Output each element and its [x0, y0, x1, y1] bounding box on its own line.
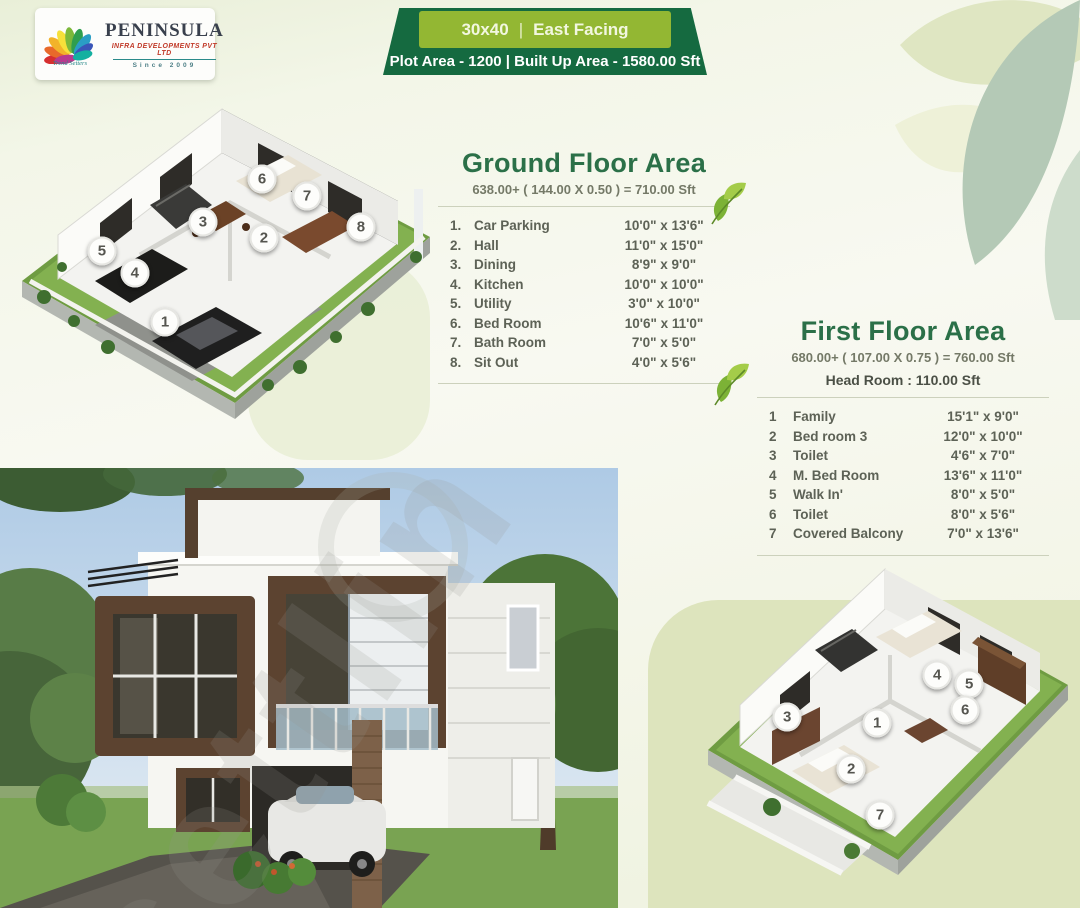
room-name: Toilet: [793, 448, 929, 463]
room-dimensions: 4'0" x 5'6": [610, 355, 718, 370]
room-name: Toilet: [793, 507, 929, 522]
ground-floor-title: Ground Floor Area: [438, 148, 730, 179]
room-dimensions: 8'0" x 5'6": [929, 507, 1037, 522]
first-floor-section: First Floor Area 680.00+ ( 107.00 X 0.75…: [757, 316, 1049, 556]
company-since: Since 2009: [105, 62, 224, 69]
plan-marker: 4: [923, 661, 952, 690]
room-number: 2: [769, 429, 793, 444]
first-floor-3d-plan: 1234567: [680, 555, 1080, 908]
room-number: 2.: [450, 238, 474, 253]
leaf-decoration-top-right: [840, 0, 1080, 320]
room-dimensions: 11'0" x 15'0": [610, 238, 718, 253]
room-dimensions: 7'0" x 5'0": [610, 335, 718, 350]
peacock-fan-icon: [43, 14, 97, 64]
room-row: 4. Kitchen 10'0" x 10'0": [450, 277, 718, 297]
banner-size-facing: 30x40 | East Facing: [419, 11, 671, 48]
first-floor-markers: 1234567: [680, 555, 1080, 908]
room-name: Sit Out: [474, 355, 610, 370]
ground-floor-section: Ground Floor Area 638.00+ ( 144.00 X 0.5…: [438, 148, 730, 384]
first-floor-bottom-divider: [757, 555, 1049, 556]
room-name: Bath Room: [474, 335, 610, 350]
logo-tagline: Trend Setters: [53, 60, 87, 67]
plan-marker: 3: [188, 207, 217, 236]
room-number: 8.: [450, 355, 474, 370]
room-number: 3.: [450, 257, 474, 272]
ground-floor-divider: [438, 206, 730, 207]
room-number: 5.: [450, 296, 474, 311]
plan-marker: 6: [248, 164, 277, 193]
room-dimensions: 13'6" x 11'0": [929, 468, 1037, 483]
room-dimensions: 8'9" x 9'0": [610, 257, 718, 272]
room-number: 7: [769, 526, 793, 541]
plot-banner: 30x40 | East Facing Plot Area - 1200 | B…: [383, 8, 707, 75]
room-name: Bed room 3: [793, 429, 929, 444]
room-row: 3 Toilet 4'6" x 7'0": [769, 448, 1037, 468]
room-row: 3. Dining 8'9" x 9'0": [450, 257, 718, 277]
house-elevation-render: [0, 468, 618, 908]
room-row: 5. Utility 3'0" x 10'0": [450, 296, 718, 316]
room-dimensions: 10'6" x 11'0": [610, 316, 718, 331]
plan-marker: 1: [151, 308, 180, 337]
room-row: 6 Toilet 8'0" x 5'6": [769, 507, 1037, 527]
room-row: 1 Family 15'1" x 9'0": [769, 409, 1037, 429]
room-dimensions: 15'1" x 9'0": [929, 409, 1037, 424]
ground-floor-bottom-divider: [438, 383, 730, 384]
room-row: 7 Covered Balcony 7'0" x 13'6": [769, 526, 1037, 546]
first-floor-title: First Floor Area: [757, 316, 1049, 347]
room-dimensions: 10'0" x 10'0": [610, 277, 718, 292]
ground-floor-3d-plan: 12345678: [0, 85, 445, 455]
room-number: 6: [769, 507, 793, 522]
company-logo-card: Trend Setters PENINSULA INFRA DEVELOPMEN…: [35, 8, 215, 80]
room-name: Dining: [474, 257, 610, 272]
company-subtitle: INFRA DEVELOPMENTS PVT LTD: [105, 43, 224, 57]
room-name: Walk In': [793, 487, 929, 502]
first-floor-formula: 680.00+ ( 107.00 X 0.75 ) = 760.00 Sft: [757, 350, 1049, 365]
first-floor-headroom: Head Room : 110.00 Sft: [757, 372, 1049, 388]
plan-marker: 3: [773, 703, 802, 732]
plan-marker: 5: [955, 669, 984, 698]
plan-marker: 6: [951, 695, 980, 724]
company-name: PENINSULA: [105, 20, 224, 42]
room-dimensions: 3'0" x 10'0": [610, 296, 718, 311]
leaf-sprig-icon: [708, 181, 748, 225]
logo-texts: PENINSULA INFRA DEVELOPMENTS PVT LTD Sin…: [105, 20, 224, 69]
room-number: 7.: [450, 335, 474, 350]
room-name: Family: [793, 409, 929, 424]
room-row: 1. Car Parking 10'0" x 13'6": [450, 218, 718, 238]
room-dimensions: 7'0" x 13'6": [929, 526, 1037, 541]
room-dimensions: 8'0" x 5'0": [929, 487, 1037, 502]
ground-floor-formula: 638.00+ ( 144.00 X 0.50 ) = 710.00 Sft: [438, 182, 730, 197]
plan-marker: 4: [120, 258, 149, 287]
plan-marker: 2: [837, 754, 866, 783]
leaf-sprig-icon: [711, 362, 751, 406]
room-name: Bed Room: [474, 316, 610, 331]
ground-floor-markers: 12345678: [0, 85, 445, 455]
room-name: Hall: [474, 238, 610, 253]
room-row: 2 Bed room 3 12'0" x 10'0": [769, 429, 1037, 449]
room-row: 4 M. Bed Room 13'6" x 11'0": [769, 468, 1037, 488]
room-number: 1: [769, 409, 793, 424]
room-number: 4: [769, 468, 793, 483]
room-row: 7. Bath Room 7'0" x 5'0": [450, 335, 718, 355]
room-row: 8. Sit Out 4'0" x 5'6": [450, 355, 718, 375]
plot-facing: East Facing: [533, 20, 628, 40]
plan-marker: 1: [863, 709, 892, 738]
plan-marker: 5: [87, 237, 116, 266]
room-dimensions: 10'0" x 13'6": [610, 218, 718, 233]
room-dimensions: 4'6" x 7'0": [929, 448, 1037, 463]
room-number: 5: [769, 487, 793, 502]
logo-fan: Trend Setters: [41, 14, 99, 74]
plot-area-info: Plot Area - 1200 | Built Up Area - 1580.…: [383, 53, 707, 70]
room-row: 6. Bed Room 10'6" x 11'0": [450, 316, 718, 336]
room-number: 3: [769, 448, 793, 463]
room-dimensions: 12'0" x 10'0": [929, 429, 1037, 444]
room-number: 6.: [450, 316, 474, 331]
first-floor-divider: [757, 397, 1049, 398]
plan-marker: 7: [293, 182, 322, 211]
room-name: Car Parking: [474, 218, 610, 233]
room-number: 4.: [450, 277, 474, 292]
plot-size: 30x40: [461, 20, 508, 40]
plan-marker: 7: [866, 801, 895, 830]
room-name: Covered Balcony: [793, 526, 929, 541]
first-floor-room-list: 1 Family 15'1" x 9'0" 2 Bed room 3 12'0"…: [757, 409, 1049, 546]
logo-divider: [113, 59, 216, 60]
banner-separator: |: [519, 20, 523, 40]
room-name: Kitchen: [474, 277, 610, 292]
room-name: Utility: [474, 296, 610, 311]
brochure-page: Trend Setters PENINSULA INFRA DEVELOPMEN…: [0, 0, 1080, 908]
plan-marker: 2: [249, 224, 278, 253]
room-number: 1.: [450, 218, 474, 233]
room-row: 2. Hall 11'0" x 15'0": [450, 238, 718, 258]
house-elevation-photo: [0, 468, 618, 908]
ground-floor-room-list: 1. Car Parking 10'0" x 13'6" 2. Hall 11'…: [438, 218, 730, 374]
plan-marker: 8: [346, 213, 375, 242]
room-row: 5 Walk In' 8'0" x 5'0": [769, 487, 1037, 507]
room-name: M. Bed Room: [793, 468, 929, 483]
